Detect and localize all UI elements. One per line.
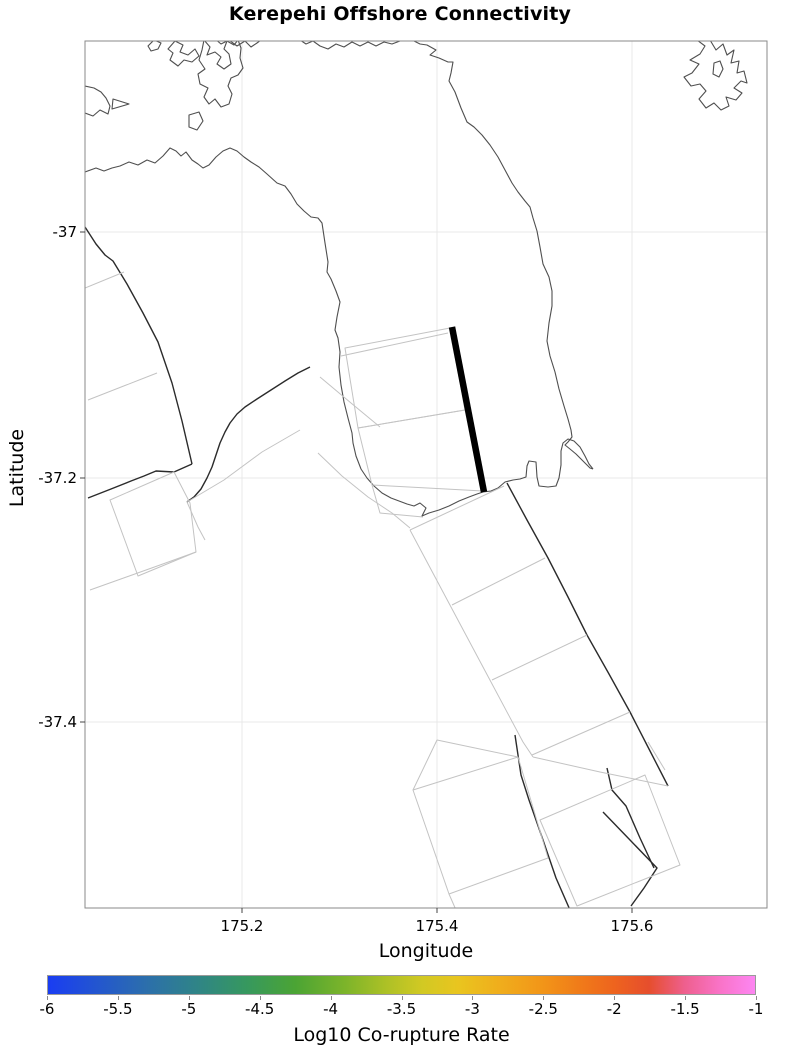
- coast-west-and-south-shore: [85, 148, 593, 516]
- fault-south-trace-b: [607, 768, 654, 868]
- colorbar-tick-label: -3.5: [387, 1000, 416, 1018]
- y-axis-label: Latitude: [6, 429, 28, 507]
- coast-island-small: [189, 112, 203, 130]
- fault-se-trace: [507, 483, 668, 786]
- patch-south-spur-2: [648, 742, 665, 770]
- patch-south-quad-a: [413, 757, 548, 894]
- colorbar-tick-label: -6: [40, 1000, 55, 1018]
- map-canvas: [0, 0, 800, 1055]
- patch-se-divider-1: [452, 558, 545, 605]
- patch-sw-quad: [110, 472, 196, 576]
- patch-junction-spur: [187, 502, 205, 540]
- coast-island-a: [148, 40, 161, 51]
- coast-islet-triangle: [112, 99, 129, 109]
- colorbar-tick-label: -5.5: [103, 1000, 132, 1018]
- patch-se-left-edge: [410, 530, 533, 757]
- highlighted-fault-kerepehi-offshore: [452, 327, 484, 492]
- fault-nw-trace-south: [88, 464, 192, 498]
- patch-south-quad-b: [540, 775, 680, 906]
- colorbar-tick-label: -1: [749, 1000, 764, 1018]
- coast-island-big: [198, 40, 243, 107]
- coast-topright-lagoon: [713, 61, 723, 77]
- colorbar-tick-label: -2.5: [529, 1000, 558, 1018]
- patch-se-top-edge: [410, 486, 504, 530]
- colorbar-tick-label: -4.5: [245, 1000, 274, 1018]
- colorbar-tick-label: -5: [181, 1000, 196, 1018]
- x-tick-label: 175.2: [221, 917, 264, 935]
- patch-nw-divider-2: [88, 373, 157, 400]
- colorbar-tick-label: -4: [323, 1000, 338, 1018]
- patch-south-quad-a-top: [413, 740, 518, 790]
- patch-se-divider-3: [532, 712, 630, 755]
- patch-nw-divider-1: [85, 272, 124, 288]
- patch-diagonal-long: [187, 430, 300, 502]
- y-tick-label: -37: [0, 223, 77, 241]
- patch-diagonal-short: [320, 377, 380, 427]
- patch-offshore-upper-edge2: [341, 333, 448, 356]
- coast-clevedon-peninsula: [85, 86, 110, 116]
- coast-island-b: [168, 41, 199, 66]
- figure-window: { "title": "Kerepehi Offshore Connectivi…: [0, 0, 800, 1055]
- colorbar-tick-label: -3: [465, 1000, 480, 1018]
- colorbar-tick-label: -2: [607, 1000, 622, 1018]
- coast-coromandel-west: [412, 40, 593, 469]
- x-axis-label: Longitude: [85, 940, 767, 962]
- patch-offshore-lower-quad: [358, 410, 483, 491]
- colorbar-gradient: [47, 975, 756, 995]
- fault-south-trace-a: [515, 735, 570, 910]
- plot-border: [85, 41, 767, 908]
- patch-se-divider-2: [492, 635, 587, 680]
- y-tick-label: -37.4: [0, 713, 77, 731]
- x-tick-label: 175.4: [416, 917, 459, 935]
- colorbar-label: Log10 Co-rupture Rate: [47, 1024, 756, 1046]
- colorbar-tick-label: -1.5: [670, 1000, 699, 1018]
- patch-sw-edge: [90, 552, 196, 590]
- fault-nw-trace: [85, 227, 192, 464]
- x-tick-label: 175.6: [611, 917, 654, 935]
- y-tick-label: -37.2: [0, 469, 77, 487]
- patch-firth-curve: [318, 453, 410, 528]
- coast-top-wiggle: [214, 38, 261, 47]
